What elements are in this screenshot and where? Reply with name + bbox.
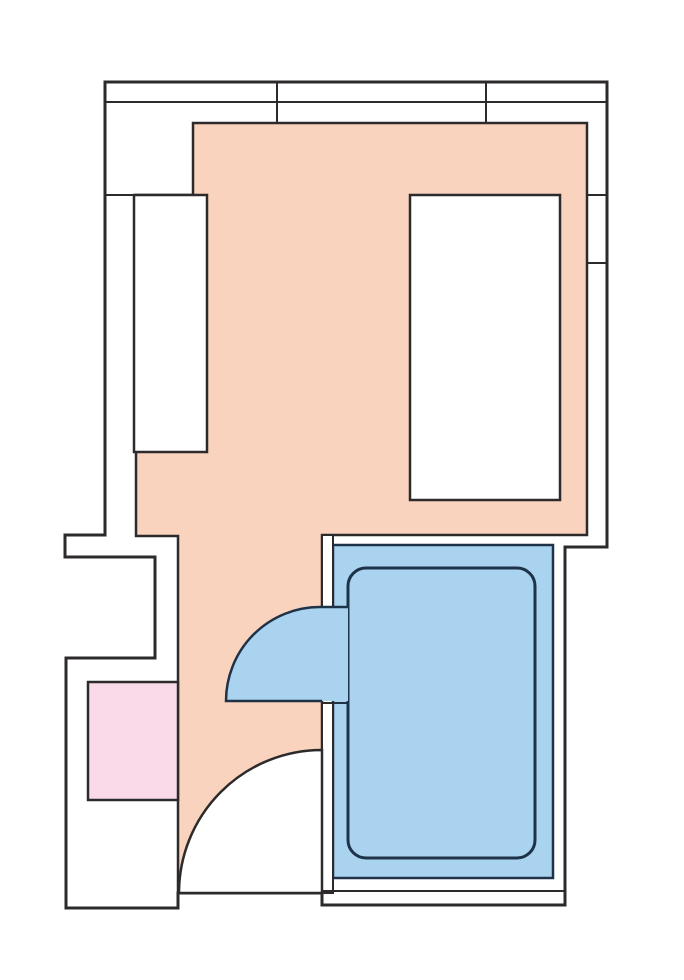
bath-wall-lower-segment (322, 703, 333, 893)
floor-plan-canvas (0, 0, 684, 980)
bath-wall-upper-segment (322, 535, 333, 607)
bath-area-floor (333, 545, 553, 878)
bed-right (410, 195, 560, 500)
pink-mat (88, 682, 178, 800)
floor-plan-svg (0, 0, 684, 980)
floor-plan-figure (0, 0, 684, 980)
closet-left (134, 195, 207, 452)
